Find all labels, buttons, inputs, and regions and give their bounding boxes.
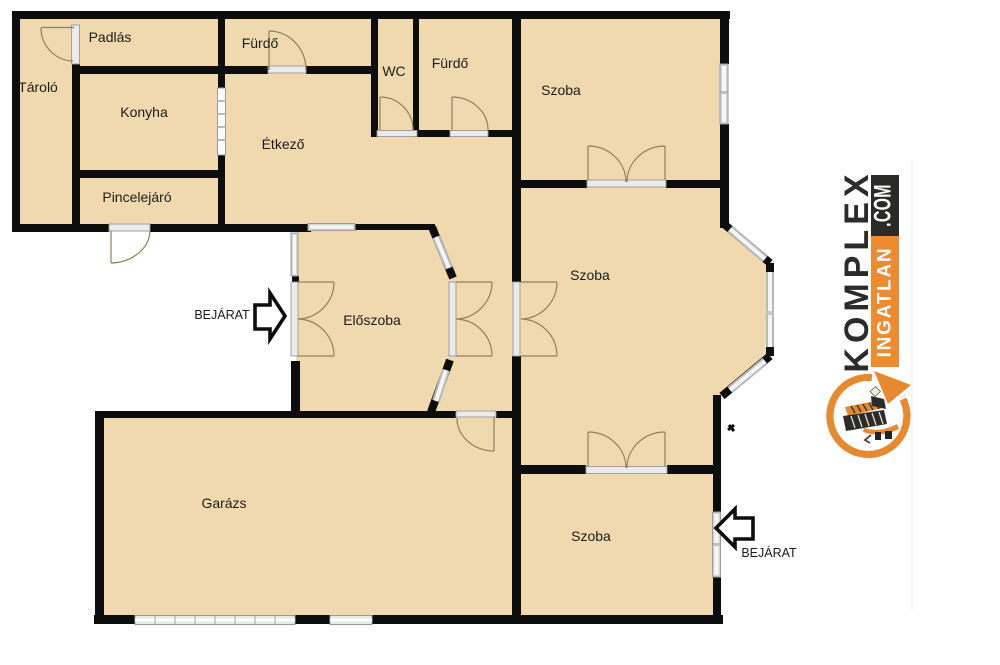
svg-text:Konyha: Konyha [120, 104, 168, 120]
svg-text:Szoba: Szoba [570, 267, 610, 283]
svg-text:Pincelejáró: Pincelejáró [102, 189, 171, 205]
svg-text:.COM: .COM [870, 184, 896, 227]
svg-text:Szoba: Szoba [541, 82, 581, 98]
svg-text:Szoba: Szoba [571, 528, 611, 544]
svg-text:BEJÁRAT: BEJÁRAT [741, 545, 797, 560]
svg-text:WC: WC [382, 63, 405, 79]
svg-text:Étkező: Étkező [262, 136, 305, 152]
svg-text:INGATLAN: INGATLAN [875, 247, 896, 358]
svg-text:BEJÁRAT: BEJÁRAT [194, 307, 250, 322]
svg-text:Fürdő: Fürdő [432, 55, 469, 71]
svg-text:Garázs: Garázs [201, 495, 246, 511]
svg-text:Padlás: Padlás [89, 29, 132, 45]
svg-text:Előszoba: Előszoba [343, 312, 401, 328]
svg-text:Tároló: Tároló [18, 79, 58, 95]
svg-text:Fürdő: Fürdő [242, 35, 279, 51]
